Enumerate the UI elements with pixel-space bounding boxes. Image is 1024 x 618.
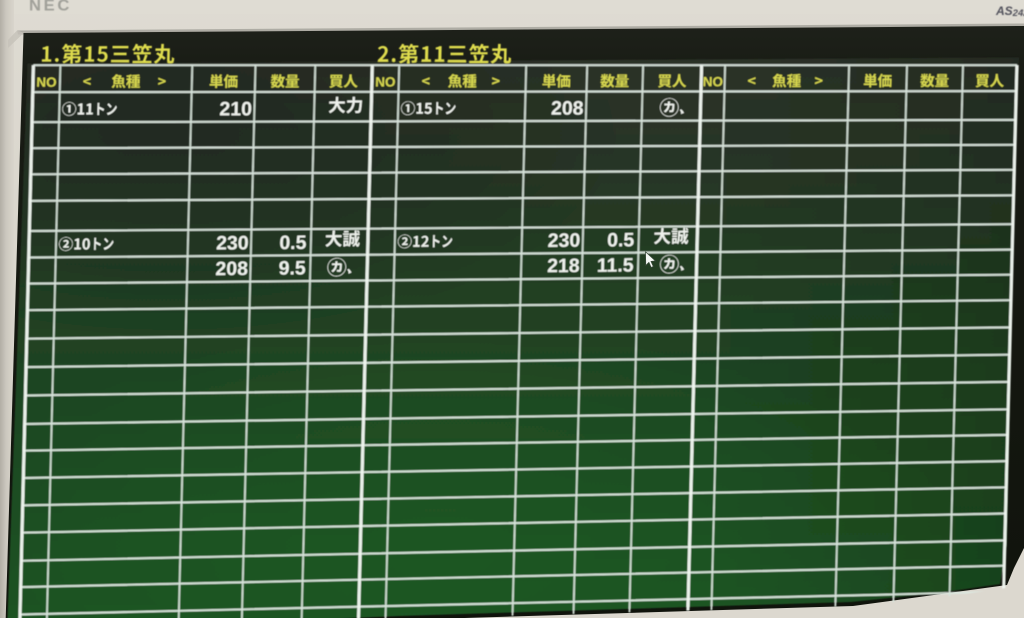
svg-text:230: 230 [216, 232, 249, 254]
svg-text:0.5: 0.5 [279, 232, 307, 254]
svg-text:218: 218 [547, 255, 580, 277]
svg-text:NEC: NEC [29, 0, 72, 15]
svg-text:0.5: 0.5 [607, 229, 635, 251]
svg-text:NO: NO [375, 74, 396, 89]
svg-text:208: 208 [215, 258, 248, 280]
svg-text:NO: NO [703, 74, 724, 89]
svg-text:NO: NO [36, 75, 57, 90]
svg-text:208: 208 [551, 98, 584, 120]
svg-text:9.5: 9.5 [278, 257, 306, 279]
svg-text:11.5: 11.5 [596, 255, 634, 277]
svg-text:210: 210 [219, 98, 252, 120]
svg-text:230: 230 [547, 230, 580, 252]
